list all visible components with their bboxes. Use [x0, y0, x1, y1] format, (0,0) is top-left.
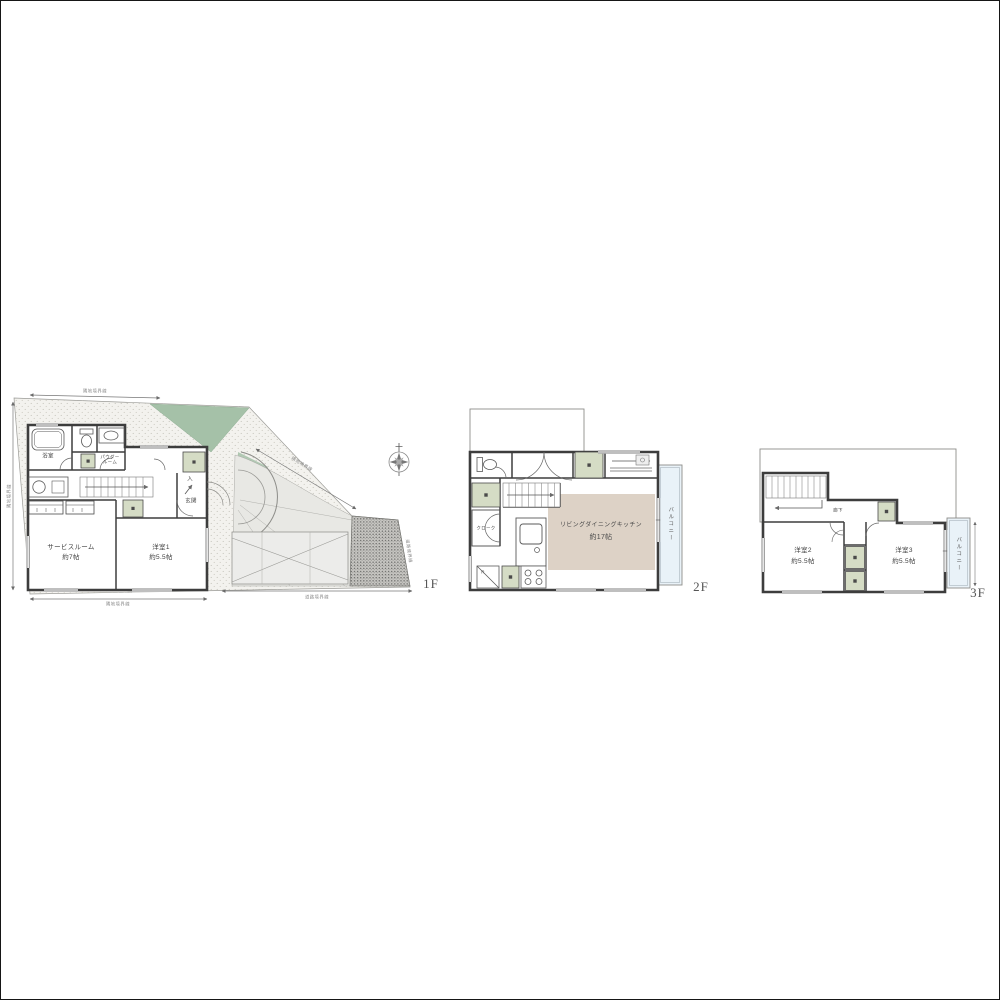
label-western3: 洋室3 — [895, 547, 913, 555]
label-hallway: 廊下 — [833, 507, 843, 512]
label-balcony-2f: バルコニー — [667, 507, 674, 542]
floor-label-2f: 2F — [693, 579, 709, 595]
slope-hatch — [350, 516, 410, 586]
stairs-2f — [503, 483, 560, 507]
compass-icon — [389, 443, 409, 476]
label-balcony-3f: バルコニー — [955, 537, 962, 572]
washbasin-icon — [99, 428, 124, 443]
ldk-floor — [548, 494, 655, 570]
stove-icon — [521, 566, 546, 588]
label-service-room-size: 約7帖 — [62, 554, 80, 562]
laundry-counter — [29, 477, 68, 497]
kitchen-counter — [516, 518, 546, 566]
label-service-room: サービスルーム — [47, 544, 94, 552]
boundary-label-top: 隣地境界線 — [83, 388, 107, 393]
label-western1: 洋室1 — [152, 544, 170, 552]
floorplan-page: 浴室 パウダー ルーム サービスルーム 約7帖 洋室1 約5.5帖 玄関 入 1… — [0, 0, 1000, 1000]
label-western3-size: 約5.5帖 — [892, 558, 916, 566]
label-ldk-size: 約17帖 — [590, 534, 613, 542]
label-ldk: リビングダイニングキッチン — [560, 522, 642, 529]
label-refrigerator: R — [481, 569, 485, 574]
house-3f — [760, 449, 975, 594]
floor-label-3f: 3F — [970, 585, 986, 601]
house-2f — [468, 409, 682, 592]
label-powder-room: パウダー ルーム — [100, 455, 119, 466]
roof-outline-2f — [470, 409, 584, 452]
house-1f — [26, 423, 230, 592]
toilet-icon — [80, 429, 93, 447]
label-western1-size: 約5.5帖 — [149, 554, 173, 562]
floorplan-drawing — [0, 0, 1000, 1000]
stairs-1f — [80, 477, 153, 497]
boundary-label-bottom: 隣地境界線 — [106, 601, 130, 606]
label-western2: 洋室2 — [794, 547, 812, 555]
parking-space — [232, 532, 348, 584]
label-western2-size: 約5.5帖 — [791, 558, 815, 566]
label-entrance: 玄関 — [185, 499, 197, 506]
label-entry-mark: 入 — [187, 477, 193, 484]
road-boundary-label: 道路境界線 — [305, 594, 329, 599]
floor-label-1f: 1F — [423, 576, 439, 592]
label-bath: 浴室 — [42, 454, 54, 461]
label-cloak: クローク — [476, 525, 495, 530]
closets-1f — [29, 501, 94, 514]
boundary-label-left: 隣地境界線 — [6, 484, 11, 508]
